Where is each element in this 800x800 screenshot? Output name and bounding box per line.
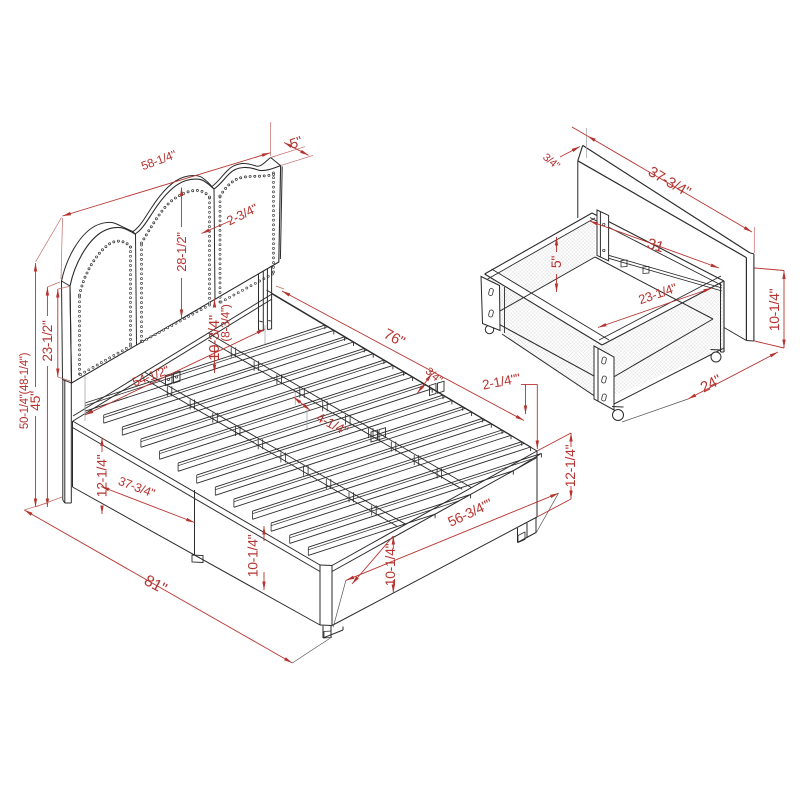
svg-text:23-1/2": 23-1/2" — [40, 320, 55, 361]
svg-text:5": 5" — [548, 256, 564, 268]
svg-text:10-1/4": 10-1/4" — [245, 534, 261, 577]
svg-text:12-1/4": 12-1/4" — [94, 454, 110, 497]
svg-text:28-1/2": 28-1/2" — [174, 232, 189, 272]
svg-text:50-1/4"(48-1/4"): 50-1/4"(48-1/4") — [19, 352, 31, 429]
svg-text:10-1/4": 10-1/4" — [766, 288, 782, 331]
svg-text:12-1/4": 12-1/4" — [562, 444, 578, 487]
svg-text:(8-3/4"): (8-3/4") — [219, 304, 233, 342]
